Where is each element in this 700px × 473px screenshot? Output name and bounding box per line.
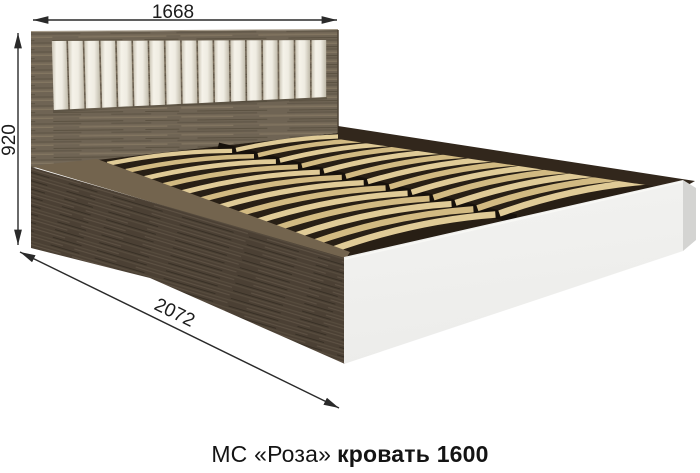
product-card: 1668 920 2072 МС «Роза»кровать 1600 — [0, 0, 700, 473]
headboard-cushion — [312, 40, 327, 98]
headboard-cushion — [84, 41, 100, 109]
headboard-cushion — [214, 40, 229, 102]
headboard-cushion — [52, 41, 69, 110]
headboard-cushion — [182, 41, 198, 104]
foot-panel-side — [683, 180, 696, 251]
dimension-length-label: 2072 — [151, 294, 198, 331]
headboard-cushion — [117, 41, 133, 107]
headboard-cushion — [198, 40, 214, 103]
headboard-cushion — [101, 41, 117, 108]
product-series-name: МС «Роза» — [211, 441, 331, 467]
headboard-cushion — [263, 40, 278, 100]
headboard-cushion — [68, 41, 84, 109]
headboard-cushion — [247, 40, 262, 101]
headboard-cushion — [149, 41, 165, 106]
headboard-cushion — [279, 40, 294, 99]
product-caption: МС «Роза»кровать 1600 — [5, 438, 695, 470]
dimension-height: 920 — [0, 33, 20, 245]
headboard-cushion — [133, 41, 149, 107]
headboard-cushion — [230, 40, 245, 101]
dimension-width: 1668 — [33, 2, 337, 23]
bed-illustration: 1668 920 2072 — [0, 0, 700, 473]
headboard-cushion — [166, 41, 182, 105]
dimension-width-label: 1668 — [152, 2, 194, 23]
product-model-name: кровать 1600 — [337, 441, 489, 467]
dimension-height-label: 920 — [0, 124, 20, 156]
headboard-cushion — [295, 40, 310, 98]
